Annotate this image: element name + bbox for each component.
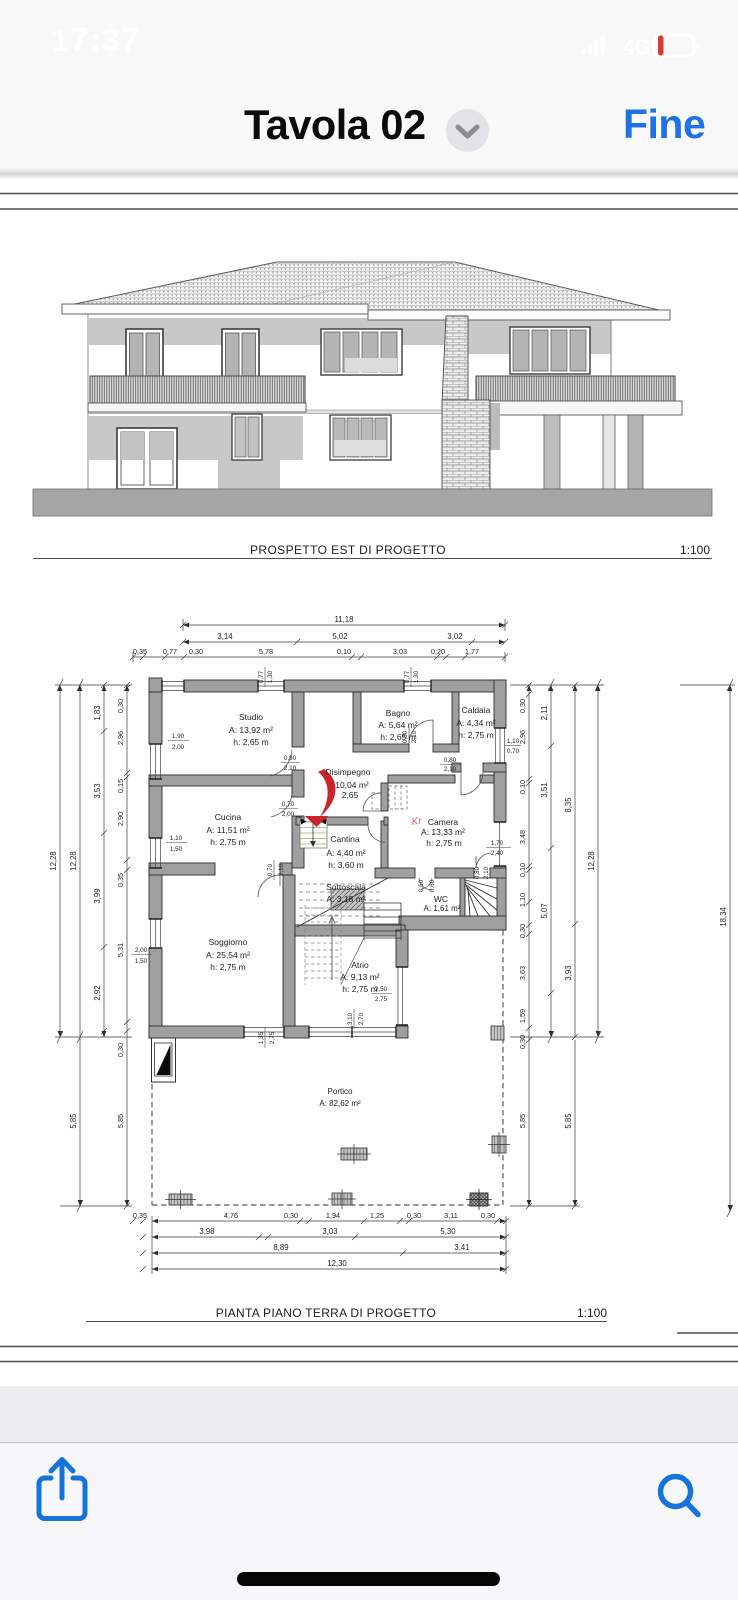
svg-text:4,76: 4,76 <box>224 1211 238 1220</box>
svg-text:0,70: 0,70 <box>282 801 295 808</box>
svg-text:0,77: 0,77 <box>163 647 177 656</box>
svg-text:Disimpegno: Disimpegno <box>326 767 371 777</box>
svg-text:2,92: 2,92 <box>93 985 102 1000</box>
svg-text:0,30: 0,30 <box>284 1211 298 1220</box>
svg-text:11,18: 11,18 <box>335 615 354 624</box>
svg-text:2,00: 2,00 <box>135 947 148 954</box>
svg-text:Sottoscala: Sottoscala <box>326 882 366 892</box>
svg-text:12,28: 12,28 <box>69 851 78 871</box>
svg-text:1,70: 1,70 <box>491 840 504 847</box>
svg-text:0,30: 0,30 <box>407 1211 421 1220</box>
svg-text:1,35: 1,35 <box>258 1031 265 1044</box>
svg-text:1,77: 1,77 <box>465 647 479 656</box>
svg-text:Camera: Camera <box>428 817 459 827</box>
svg-text:A: 4,40 m²: A: 4,40 m² <box>326 848 365 858</box>
svg-text:2,70: 2,70 <box>358 1012 365 1025</box>
svg-text:0,77: 0,77 <box>258 670 265 683</box>
svg-text:2,10: 2,10 <box>444 766 457 773</box>
svg-text:0,77: 0,77 <box>404 670 411 683</box>
svg-text:3,02: 3,02 <box>447 632 462 641</box>
svg-text:0,15: 0,15 <box>116 779 125 793</box>
svg-text:2,00: 2,00 <box>172 744 185 751</box>
svg-text:1:100: 1:100 <box>680 543 710 557</box>
svg-text:PIANTA PIANO TERRA DI PROGETTO: PIANTA PIANO TERRA DI PROGETTO <box>216 1306 436 1320</box>
svg-text:A: 1,61 m²: A: 1,61 m² <box>424 904 461 913</box>
svg-text:3,11: 3,11 <box>444 1211 458 1220</box>
svg-text:0,35: 0,35 <box>133 647 147 656</box>
svg-text:5,85: 5,85 <box>116 1114 125 1128</box>
svg-text:0,35: 0,35 <box>116 873 125 887</box>
svg-text:Studio: Studio <box>239 712 263 722</box>
svg-text:0,20: 0,20 <box>431 647 445 656</box>
svg-text:0,80: 0,80 <box>284 755 297 762</box>
svg-text:5,85: 5,85 <box>518 1114 527 1128</box>
svg-text:1,10: 1,10 <box>170 835 183 842</box>
svg-text:0,30: 0,30 <box>116 1043 125 1057</box>
svg-text:2,00: 2,00 <box>282 811 295 818</box>
svg-text:0,35: 0,35 <box>133 1211 147 1220</box>
svg-text:2,96: 2,96 <box>116 731 125 745</box>
svg-text:10,04 m²: 10,04 m² <box>335 780 369 790</box>
svg-text:1:100: 1:100 <box>577 1306 607 1320</box>
svg-text:h: 3,60 m: h: 3,60 m <box>328 860 363 870</box>
svg-text:A: 25,54 m²: A: 25,54 m² <box>206 950 250 960</box>
svg-text:3,41: 3,41 <box>454 1243 469 1252</box>
svg-text:1,25: 1,25 <box>370 1211 384 1220</box>
svg-text:A: 13,33 m²: A: 13,33 m² <box>421 827 465 837</box>
svg-text:0,70: 0,70 <box>267 863 274 876</box>
svg-text:12,28: 12,28 <box>49 851 58 871</box>
svg-text:1,94: 1,94 <box>326 1211 340 1220</box>
svg-text:1,10: 1,10 <box>518 893 527 907</box>
svg-text:WC: WC <box>434 894 448 904</box>
svg-text:0,30: 0,30 <box>518 1035 527 1049</box>
svg-text:0,70: 0,70 <box>507 748 520 755</box>
svg-text:0,80: 0,80 <box>444 757 457 764</box>
svg-text:5,30: 5,30 <box>440 1227 456 1236</box>
svg-text:0,10: 0,10 <box>337 647 351 656</box>
svg-text:2,10: 2,10 <box>284 765 297 772</box>
svg-text:2,11: 2,11 <box>540 706 549 721</box>
svg-text:A: 82,62 m²: A: 82,62 m² <box>319 1099 361 1108</box>
svg-text:8,89: 8,89 <box>273 1243 288 1252</box>
svg-text:5,02: 5,02 <box>332 632 347 641</box>
svg-text:0,30: 0,30 <box>116 699 125 713</box>
svg-text:0,80: 0,80 <box>474 866 481 879</box>
svg-text:5,85: 5,85 <box>69 1113 78 1129</box>
svg-text:Cucina: Cucina <box>215 812 242 822</box>
svg-text:3,63: 3,63 <box>518 966 527 980</box>
svg-text:3,98: 3,98 <box>199 1227 214 1236</box>
svg-text:3,48: 3,48 <box>518 830 527 844</box>
svg-text:h: 2,75 m: h: 2,75 m <box>210 962 245 972</box>
svg-text:h: 2,75 m: h: 2,75 m <box>210 837 245 847</box>
svg-text:Soggiorno: Soggiorno <box>209 937 248 947</box>
svg-text:3,99: 3,99 <box>93 888 102 903</box>
svg-text:3,03: 3,03 <box>393 647 407 656</box>
svg-text:0,10: 0,10 <box>518 863 527 877</box>
svg-text:5,31: 5,31 <box>116 943 125 957</box>
svg-text:12,28: 12,28 <box>587 851 596 871</box>
svg-text:0,60: 0,60 <box>429 879 436 892</box>
svg-text:2,90: 2,90 <box>116 812 125 826</box>
svg-text:3,14: 3,14 <box>217 632 233 641</box>
svg-text:A: 5,64 m²: A: 5,64 m² <box>378 720 417 730</box>
svg-text:2,75: 2,75 <box>269 1031 276 1044</box>
svg-text:h: 2,75 m: h: 2,75 m <box>342 984 377 994</box>
svg-text:1,90: 1,90 <box>172 733 185 740</box>
svg-text:1,30: 1,30 <box>267 670 274 683</box>
svg-text:3,03: 3,03 <box>322 1227 337 1236</box>
svg-text:2,75: 2,75 <box>375 996 388 1003</box>
svg-text:3,51: 3,51 <box>540 782 549 797</box>
svg-text:2,65: 2,65 <box>342 790 359 800</box>
svg-text:A: 11,51 m²: A: 11,51 m² <box>206 825 249 835</box>
svg-text:1,83: 1,83 <box>93 705 102 720</box>
svg-text:0,30: 0,30 <box>481 1211 495 1220</box>
svg-text:2,40: 2,40 <box>491 850 504 857</box>
svg-text:1,59: 1,59 <box>518 1009 527 1023</box>
svg-text:3,93: 3,93 <box>564 965 573 980</box>
svg-text:0,30: 0,30 <box>518 924 527 938</box>
svg-text:A: 9,13 m²: A: 9,13 m² <box>340 972 379 982</box>
svg-text:0,30: 0,30 <box>189 647 203 656</box>
svg-text:1,50: 1,50 <box>170 846 183 853</box>
svg-text:A: 13,92 m²: A: 13,92 m² <box>229 725 273 735</box>
svg-text:0,30: 0,30 <box>518 699 527 713</box>
svg-text:2,50: 2,50 <box>375 986 388 993</box>
svg-text:Portico: Portico <box>328 1087 353 1096</box>
svg-text:0,10: 0,10 <box>518 780 527 794</box>
svg-text:2,96: 2,96 <box>518 730 527 744</box>
svg-text:3,10: 3,10 <box>347 1012 354 1025</box>
svg-text:Bagno: Bagno <box>386 708 411 718</box>
svg-text:8,35: 8,35 <box>564 797 573 813</box>
svg-text:2,10: 2,10 <box>411 730 418 743</box>
svg-text:PROSPETTO EST DI PROGETTO: PROSPETTO EST DI PROGETTO <box>250 543 446 557</box>
svg-text:5,85: 5,85 <box>564 1113 573 1129</box>
svg-text:Cantina: Cantina <box>330 834 360 844</box>
svg-text:2,10: 2,10 <box>278 863 285 876</box>
svg-text:0,60: 0,60 <box>418 879 425 892</box>
svg-text:5,78: 5,78 <box>259 647 273 656</box>
svg-text:1,30: 1,30 <box>413 670 420 683</box>
svg-text:3,53: 3,53 <box>93 783 102 798</box>
svg-text:Atrio: Atrio <box>351 960 369 970</box>
svg-text:0,80: 0,80 <box>402 730 409 743</box>
svg-text:1,50: 1,50 <box>135 958 148 965</box>
svg-text:h: 2,75 m: h: 2,75 m <box>458 730 493 740</box>
svg-text:A: 3,18 m²: A: 3,18 m² <box>326 894 365 904</box>
svg-text:12,30: 12,30 <box>327 1259 347 1268</box>
svg-text:5,07: 5,07 <box>540 903 549 918</box>
svg-text:h: 2,65 m: h: 2,65 m <box>233 737 268 747</box>
svg-text:h: 2,75 m: h: 2,75 m <box>426 838 461 848</box>
svg-text:A: 4,34 m²: A: 4,34 m² <box>456 718 495 728</box>
svg-text:2,10: 2,10 <box>483 866 490 879</box>
svg-text:18,34: 18,34 <box>719 907 728 927</box>
svg-text:Caldaia: Caldaia <box>462 705 491 715</box>
